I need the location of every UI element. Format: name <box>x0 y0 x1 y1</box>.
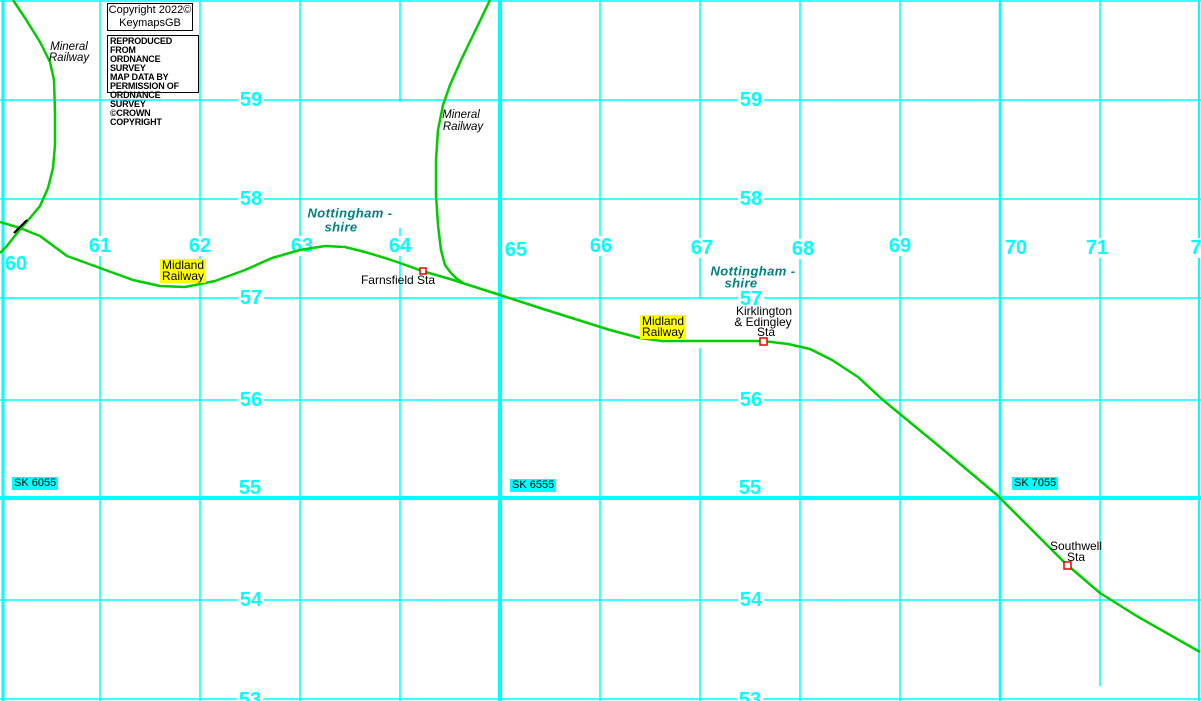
county-label: Nottingham - <box>308 206 393 221</box>
copyright-line1: Copyright 2022© <box>108 4 192 17</box>
station-label: Farnsfield Sta <box>361 273 435 287</box>
grid-number: 57 <box>238 288 264 308</box>
grid-number: 60 <box>5 254 27 274</box>
grid-number: 59 <box>238 90 264 110</box>
grid-number: 62 <box>187 236 213 256</box>
midland-railway-highlight-label: MidlandRailway <box>160 259 206 283</box>
county-label: shire <box>724 276 757 291</box>
grid-number: 55 <box>739 478 761 498</box>
highlight-label-line: Railway <box>642 327 684 338</box>
grid-number: 68 <box>790 239 816 259</box>
os-notice-line: ORDNANCE SURVEY <box>110 91 198 109</box>
grid-number: 67 <box>689 238 715 258</box>
county-label: shire <box>324 220 357 235</box>
os-copyright-notice: REPRODUCED FROM ORDNANCE SURVEY MAP DATA… <box>107 35 199 93</box>
grid-number: 59 <box>738 90 764 110</box>
railway-crossing-mark <box>14 220 27 233</box>
grid-number: 61 <box>87 236 113 256</box>
copyright-line2: KeymapsGB <box>108 17 192 30</box>
grid-number: 53 <box>237 690 263 701</box>
grid-number: 54 <box>738 590 764 610</box>
station-label: Sta <box>757 325 775 339</box>
mineral-railway-label: Railway <box>443 121 483 133</box>
station-marker <box>760 338 767 345</box>
grid-reference-tag: SK 6055 <box>12 477 58 490</box>
grid-number: 53 <box>737 690 763 701</box>
grid-reference-tag: SK 7055 <box>1012 477 1058 490</box>
grid-number: 69 <box>887 236 913 256</box>
mineral-railway-central <box>436 0 490 283</box>
mineral-railway-label: Railway <box>49 52 89 64</box>
midland-railway-main-line <box>0 222 1200 652</box>
grid-number: 54 <box>238 590 264 610</box>
grid-number: 58 <box>238 189 264 209</box>
grid-number: 65 <box>505 240 527 260</box>
os-notice-line: ©CROWN COPYRIGHT <box>110 109 198 127</box>
grid-number: 64 <box>387 236 413 256</box>
grid-number: 58 <box>738 189 764 209</box>
grid-number: 7 <box>1188 238 1201 258</box>
map-canvas: Copyright 2022© KeymapsGB REPRODUCED FRO… <box>0 0 1201 701</box>
mineral-railway-label: Mineral <box>442 109 480 121</box>
midland-railway-highlight-label: MidlandRailway <box>640 315 686 339</box>
highlight-label-line: Railway <box>162 271 204 282</box>
os-notice-line: REPRODUCED FROM <box>110 37 198 55</box>
copyright-box: Copyright 2022© KeymapsGB <box>107 3 193 31</box>
grid-number: 56 <box>738 390 764 410</box>
grid-number: 63 <box>289 236 315 256</box>
mineral-railway-west <box>0 0 55 253</box>
grid-number: 71 <box>1084 238 1110 258</box>
grid-number: 55 <box>239 478 261 498</box>
station-label: Sta <box>1067 550 1085 564</box>
grid-number: 56 <box>238 390 264 410</box>
grid-number: 70 <box>1005 238 1027 258</box>
os-notice-line: ORDNANCE SURVEY <box>110 55 198 73</box>
grid-number: 66 <box>588 236 614 256</box>
grid-reference-tag: SK 6555 <box>510 479 556 492</box>
